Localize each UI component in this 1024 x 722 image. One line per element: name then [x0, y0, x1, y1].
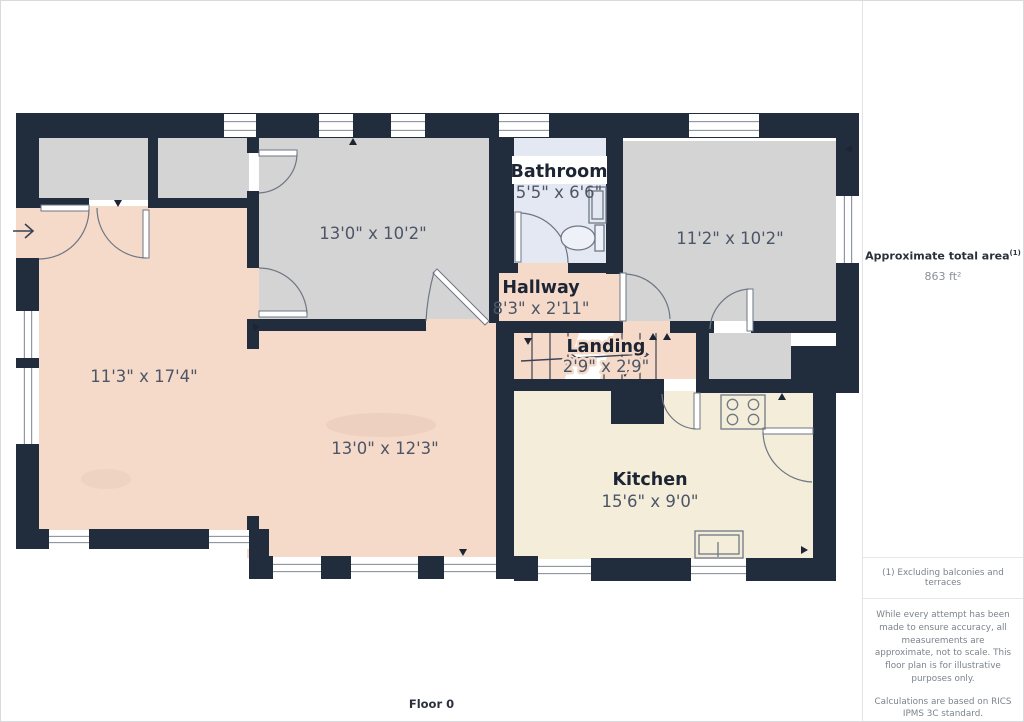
room-label-dining-room-dims: 13'0" x 12'3"	[331, 439, 439, 458]
total-area-label-text: Approximate total area	[865, 250, 1009, 263]
room-label-right-room-dims: 11'2" x 10'2"	[676, 229, 784, 248]
window	[351, 557, 418, 579]
window	[17, 311, 39, 358]
window	[49, 530, 89, 549]
floor-plan-drawing: Bathroom 5'5" x 6'6" 13'0" x 10'2" 11'2"…	[1, 1, 862, 722]
sidebar: Approximate total area(1) 863 ft² (1) Ex…	[862, 1, 1023, 721]
window	[209, 530, 249, 549]
window	[538, 559, 591, 581]
total-area-value: 863 ft²	[863, 270, 1023, 283]
window	[499, 114, 549, 137]
total-area-footnote-marker: (1)	[1010, 249, 1021, 257]
floor-smudge	[81, 469, 131, 489]
window	[273, 557, 321, 579]
disclaimer-accuracy: While every attempt has been made to ens…	[873, 609, 1013, 686]
area-footnote: (1) Excluding balconies and terraces	[863, 558, 1023, 598]
room-floor-nook	[709, 333, 791, 379]
toilet-fixture	[561, 225, 604, 251]
window	[319, 114, 353, 137]
floor-plan-page: Bathroom 5'5" x 6'6" 13'0" x 10'2" 11'2"…	[0, 0, 1024, 722]
room-floors	[16, 136, 836, 559]
window	[837, 196, 859, 263]
window	[691, 559, 746, 581]
room-label-front-room-dims: 13'0" x 10'2"	[319, 224, 427, 243]
sidebar-notes: (1) Excluding balconies and terraces Whi…	[863, 557, 1023, 722]
room-floor-closet-left	[39, 138, 148, 200]
window	[391, 114, 425, 137]
window	[224, 114, 256, 137]
room-label-bathroom-name: Bathroom	[511, 162, 608, 182]
divider	[863, 598, 1023, 599]
room-label-hallway-dims: 8'3" x 2'11"	[493, 299, 590, 318]
floor-smudge	[326, 413, 436, 437]
room-label-kitchen-dims: 15'6" x 9'0"	[602, 492, 699, 511]
room-label-living-room-dims: 11'3" x 17'4"	[90, 367, 198, 386]
room-floor-closet-right	[158, 138, 249, 200]
room-label-landing-dims: 2'9" x 2'9"	[563, 357, 650, 376]
window	[17, 368, 39, 444]
room-label-landing-name: Landing	[567, 337, 646, 357]
total-area-label: Approximate total area(1)	[863, 249, 1023, 263]
room-label-hallway-name: Hallway	[502, 278, 580, 298]
total-area-block: Approximate total area(1) 863 ft²	[863, 249, 1023, 283]
window	[444, 557, 496, 579]
room-label-kitchen-name: Kitchen	[612, 470, 687, 490]
disclaimer-standard: Calculations are based on RICS IPMS 3C s…	[873, 696, 1013, 722]
room-label-bathroom-dims: 5'5" x 6'6"	[516, 183, 603, 202]
window	[689, 114, 759, 137]
floor-label: Floor 0	[1, 697, 862, 711]
entrance-recess	[16, 208, 41, 259]
